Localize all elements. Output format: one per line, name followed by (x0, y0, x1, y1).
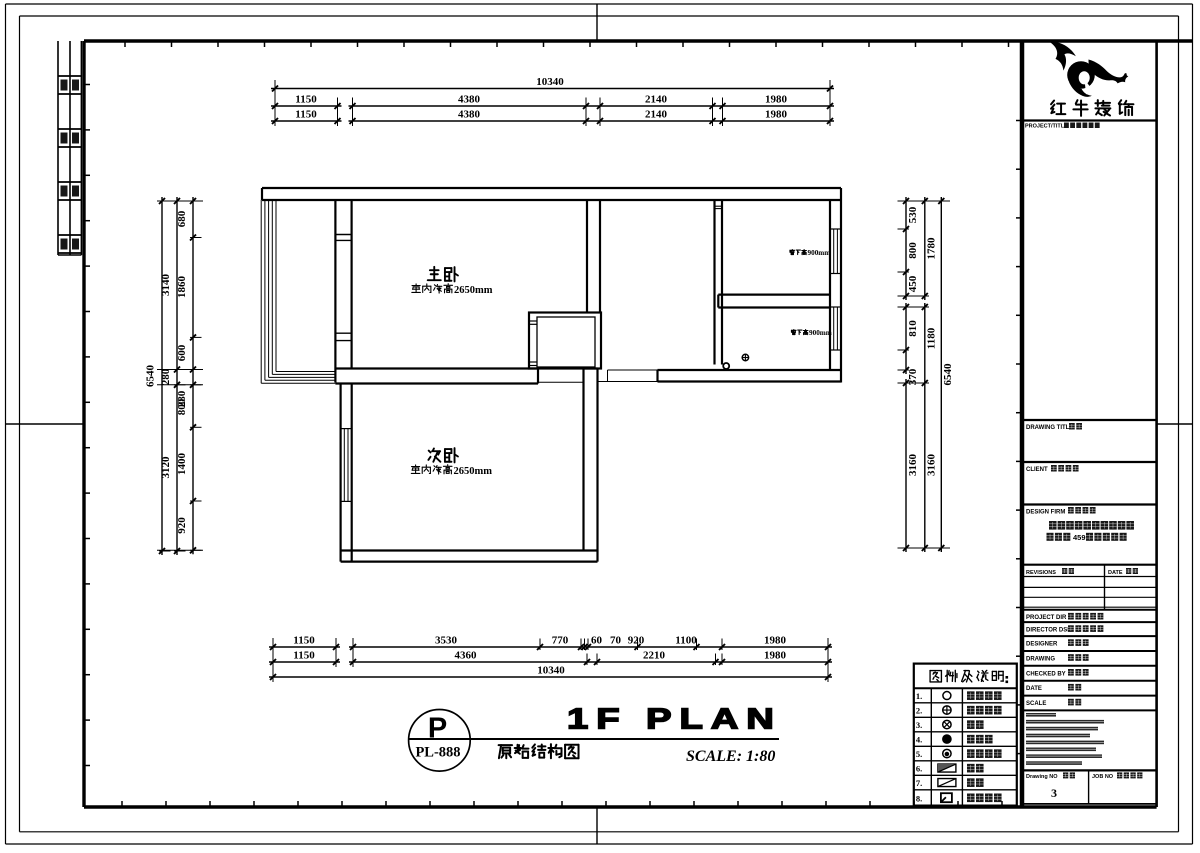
svg-text:7.: 7. (916, 778, 922, 788)
svg-text:2140: 2140 (645, 109, 668, 121)
svg-text:800: 800 (176, 398, 188, 415)
svg-text:8.: 8. (916, 793, 922, 803)
svg-text:530: 530 (907, 206, 919, 223)
svg-text:900mm: 900mm (809, 329, 832, 337)
svg-text:459: 459 (1073, 533, 1086, 542)
svg-text:1100: 1100 (675, 635, 697, 647)
svg-text:2.: 2. (916, 706, 922, 716)
svg-text:DATE: DATE (1108, 570, 1123, 576)
svg-text:70: 70 (610, 635, 622, 647)
svg-text:6540: 6540 (145, 365, 157, 388)
svg-text:6540: 6540 (942, 363, 954, 386)
svg-text:3: 3 (1051, 786, 1057, 800)
svg-text:1780: 1780 (925, 237, 937, 260)
svg-text:PROJECT DIR: PROJECT DIR (1026, 615, 1067, 621)
svg-text:800: 800 (907, 242, 919, 259)
svg-text:1180: 1180 (925, 327, 937, 349)
svg-text:JOB NO: JOB NO (1092, 774, 1114, 780)
svg-text:REVISIONS: REVISIONS (1026, 570, 1056, 576)
svg-text:3140: 3140 (160, 274, 172, 297)
svg-text:DESIGN FIRM: DESIGN FIRM (1026, 510, 1065, 516)
svg-text:1980: 1980 (764, 635, 787, 647)
svg-text:1150: 1150 (293, 650, 315, 662)
svg-text:1150: 1150 (295, 109, 317, 121)
svg-text:2650mm: 2650mm (454, 466, 493, 477)
svg-text:600: 600 (176, 344, 188, 361)
svg-text:10340: 10340 (536, 76, 564, 88)
svg-text:4360: 4360 (455, 650, 478, 662)
svg-text:4380: 4380 (458, 109, 481, 121)
svg-text:3530: 3530 (435, 635, 458, 647)
svg-text:680: 680 (176, 210, 188, 227)
svg-text:10340: 10340 (537, 665, 565, 677)
svg-text:450: 450 (907, 275, 919, 292)
svg-text:1980: 1980 (764, 650, 787, 662)
svg-text:900mm: 900mm (808, 249, 831, 257)
svg-text:DRAWING: DRAWING (1026, 657, 1055, 663)
svg-text:1150: 1150 (295, 94, 317, 106)
svg-text:DIRECTOR DSN: DIRECTOR DSN (1026, 628, 1072, 634)
svg-text:PL-888: PL-888 (415, 745, 460, 761)
svg-text:6.: 6. (916, 764, 922, 774)
svg-text:CHECKED BY: CHECKED BY (1026, 671, 1066, 677)
svg-text:SCALE: 1:80: SCALE: 1:80 (686, 748, 775, 765)
svg-text:DRAWING TITLE: DRAWING TITLE (1026, 425, 1073, 431)
svg-text:810: 810 (907, 320, 919, 337)
svg-text:4380: 4380 (458, 94, 481, 106)
svg-text:5.: 5. (916, 749, 922, 759)
svg-text:3160: 3160 (907, 454, 919, 477)
svg-text:1860: 1860 (176, 276, 188, 299)
svg-text:1980: 1980 (765, 109, 788, 121)
svg-text:920: 920 (176, 517, 188, 534)
svg-text:2210: 2210 (643, 650, 666, 662)
svg-text:CLIENT: CLIENT (1026, 467, 1048, 473)
svg-text:920: 920 (628, 635, 645, 647)
svg-text:4.: 4. (916, 735, 922, 745)
svg-text:SCALE: SCALE (1026, 701, 1046, 707)
svg-text:DATE: DATE (1026, 686, 1042, 692)
svg-text:1F PLAN: 1F PLAN (567, 703, 782, 735)
svg-text:2140: 2140 (645, 94, 668, 106)
svg-text:PROJECT/TITLE: PROJECT/TITLE (1025, 124, 1068, 130)
svg-text:60: 60 (591, 635, 603, 647)
svg-text:2650mm: 2650mm (454, 285, 493, 296)
svg-text:1400: 1400 (176, 453, 188, 476)
svg-text:280: 280 (160, 368, 172, 385)
svg-text:770: 770 (552, 635, 569, 647)
svg-text:3.: 3. (916, 720, 922, 730)
svg-text:3120: 3120 (160, 456, 172, 479)
svg-text:Drawing NO: Drawing NO (1026, 774, 1058, 780)
svg-text:1.: 1. (916, 691, 922, 701)
svg-text:3160: 3160 (925, 454, 937, 477)
svg-text:1150: 1150 (293, 635, 315, 647)
svg-text:1980: 1980 (765, 94, 788, 106)
svg-text:DESIGNER: DESIGNER (1026, 642, 1058, 648)
